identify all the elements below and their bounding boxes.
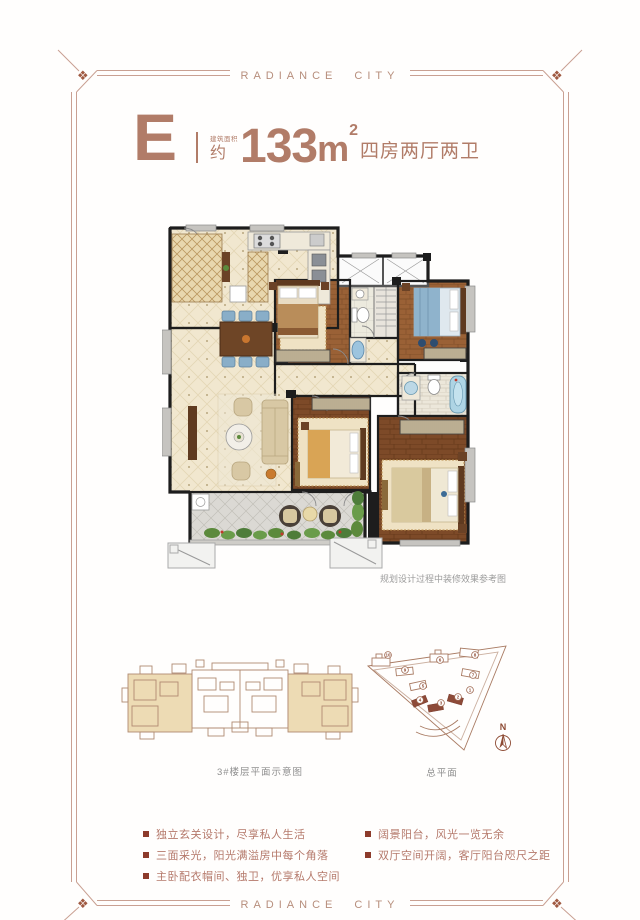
bedroom2-wardrobe	[276, 350, 330, 362]
area-label-column: 建筑面积 约	[210, 137, 238, 167]
brand-title-top: RADIANCE CITY	[241, 70, 400, 82]
site-plan: 10968754321 N	[360, 642, 518, 767]
bullet-square-icon	[143, 831, 149, 837]
bullet-square-icon	[143, 873, 149, 879]
bullet-square-icon	[365, 831, 371, 837]
feature-text: 双厅空间开阔，客厅阳台咫尺之距	[378, 847, 551, 863]
svg-text:10: 10	[385, 653, 391, 658]
kitchen-island	[248, 252, 268, 302]
fridge	[230, 286, 246, 302]
bullet-square-icon	[365, 852, 371, 858]
corner-ornament-icon: ❖	[551, 896, 563, 911]
corner-ornament-icon: ❖	[77, 896, 89, 911]
brochure-page: ❖ ❖ ❖ ❖ RADIANCE CITY RADIANCE CITY E 建筑…	[0, 0, 640, 920]
feature-text: 阔景阳台，风光一览无余	[378, 826, 505, 842]
entry-cabinet	[172, 234, 222, 302]
title-divider	[196, 132, 198, 163]
building-floor-diagram	[120, 652, 365, 752]
feature-text: 主卧配衣帽间、独卫，优享私人空间	[156, 868, 340, 884]
area-superscript: 2	[349, 122, 358, 140]
floor-diagram-label: 3#楼层平面示意图	[178, 764, 342, 778]
bedroom3-wardrobe	[424, 348, 466, 359]
feature-item: 双厅空间开阔，客厅阳台咫尺之距	[365, 844, 515, 865]
svg-text:N: N	[500, 722, 507, 732]
feature-text: 三面采光，阳光满溢房中每个角落	[156, 847, 329, 863]
unit-title: E 建筑面积 约 133 m 2 四房两厅两卫	[133, 108, 480, 166]
bedroom4-wardrobe	[312, 398, 370, 410]
plan-disclaimer: 规划设计过程中装修效果参考图	[322, 572, 506, 585]
area-unit: m	[317, 133, 349, 165]
unit-layout: 四房两厅两卫	[360, 136, 480, 163]
feature-item: 主卧配衣帽间、独卫，优享私人空间	[143, 865, 358, 886]
bullet-square-icon	[143, 852, 149, 858]
feature-list-right: 阔景阳台，风光一览无余双厅空间开阔，客厅阳台咫尺之距	[365, 823, 515, 865]
brand-title-bottom: RADIANCE CITY	[241, 899, 400, 911]
feature-item: 阔景阳台，风光一览无余	[365, 823, 515, 844]
master-wardrobe	[400, 420, 464, 434]
north-arrow: N	[496, 722, 511, 751]
corner-ornament-icon: ❖	[77, 68, 89, 83]
floor-plan	[162, 224, 478, 574]
feature-text: 独立玄关设计，尽享私人生活	[156, 826, 306, 842]
feature-item: 三面采光，阳光满溢房中每个角落	[143, 844, 358, 865]
vanity-sink	[352, 341, 364, 359]
area-label: 建筑面积	[210, 137, 238, 144]
area-value: 133	[240, 127, 317, 166]
unit-letter: E	[133, 108, 176, 166]
feature-list-left: 独立玄关设计，尽享私人生活三面采光，阳光满溢房中每个角落主卧配衣帽间、独卫，优享…	[143, 823, 358, 886]
washer	[192, 494, 209, 510]
tv-cabinet	[188, 406, 197, 460]
site-plan-label: 总平面	[404, 765, 480, 779]
corner-ornament-icon: ❖	[551, 68, 563, 83]
feature-item: 独立玄关设计，尽享私人生活	[143, 823, 358, 844]
toilet	[357, 308, 369, 323]
area-approx: 约	[210, 146, 238, 162]
